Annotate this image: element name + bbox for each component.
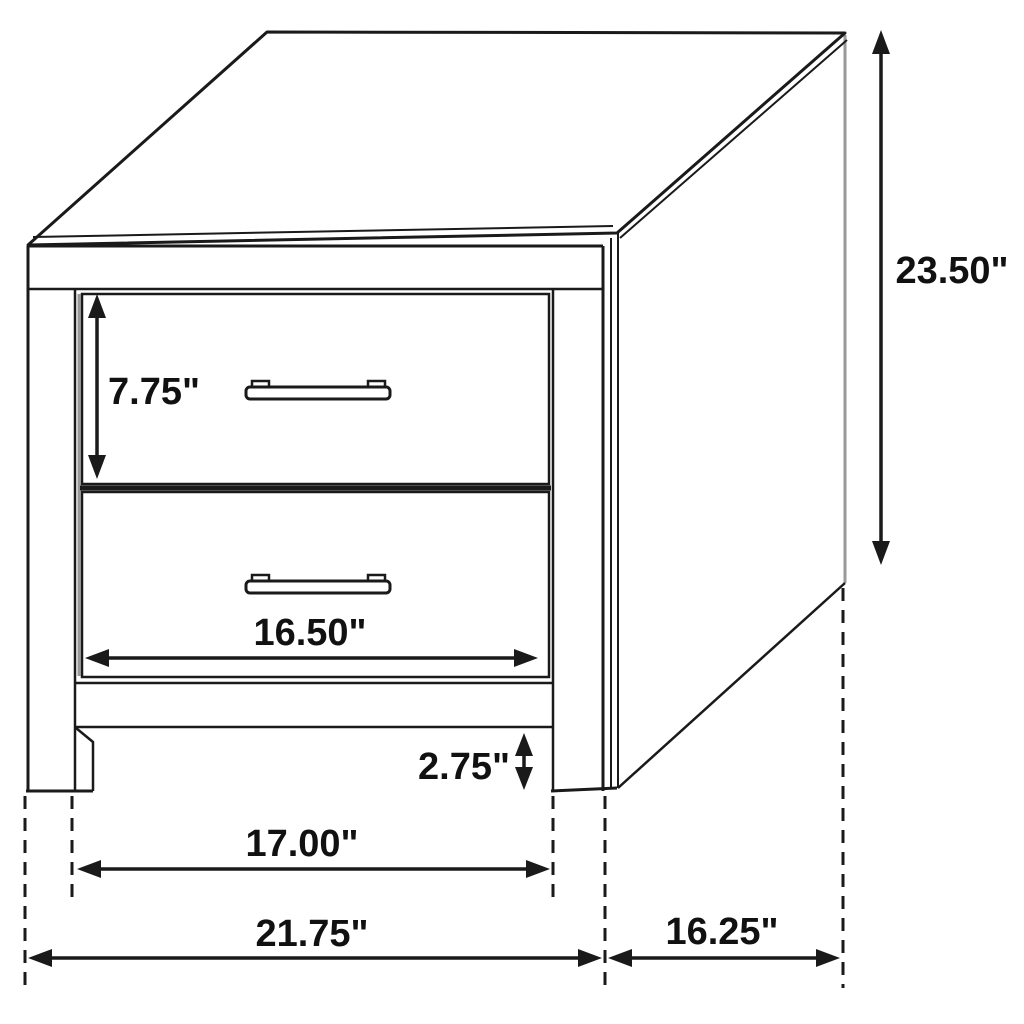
- handle-bar: [246, 387, 390, 399]
- handle-bar: [246, 581, 390, 593]
- arrow-left-icon: [608, 949, 632, 967]
- arrow-right-icon: [816, 949, 840, 967]
- arrow-right-icon: [578, 949, 602, 967]
- arrow-down-icon: [872, 541, 890, 565]
- arrow-right-icon: [526, 860, 550, 878]
- dimension-leg-spacing: 17.00": [77, 823, 550, 878]
- arrow-left-icon: [77, 860, 101, 878]
- dimension-overall-width: 21.75": [28, 913, 602, 967]
- dimension-label-height: 23.50": [895, 250, 1008, 292]
- dimension-label-leg-clearance: 2.75": [418, 746, 510, 788]
- dimension-height: 23.50": [872, 30, 1009, 565]
- dimension-label-overall-width: 21.75": [255, 913, 368, 955]
- arrow-left-icon: [28, 949, 52, 967]
- dimension-label-depth: 16.25": [665, 911, 778, 953]
- dimension-label-drawer-width: 16.50": [253, 612, 366, 654]
- nightstand-line-drawing: 23.50" 7.75" 16.50" 2.75" 17.00" 21.75": [0, 0, 1024, 1024]
- dimension-depth: 16.25": [608, 911, 840, 967]
- dimension-diagram: 23.50" 7.75" 16.50" 2.75" 17.00" 21.75": [0, 0, 1024, 1024]
- dimension-label-drawer-height: 7.75": [108, 371, 200, 413]
- dimension-label-leg-spacing: 17.00": [245, 823, 358, 865]
- arrow-up-icon: [872, 30, 890, 54]
